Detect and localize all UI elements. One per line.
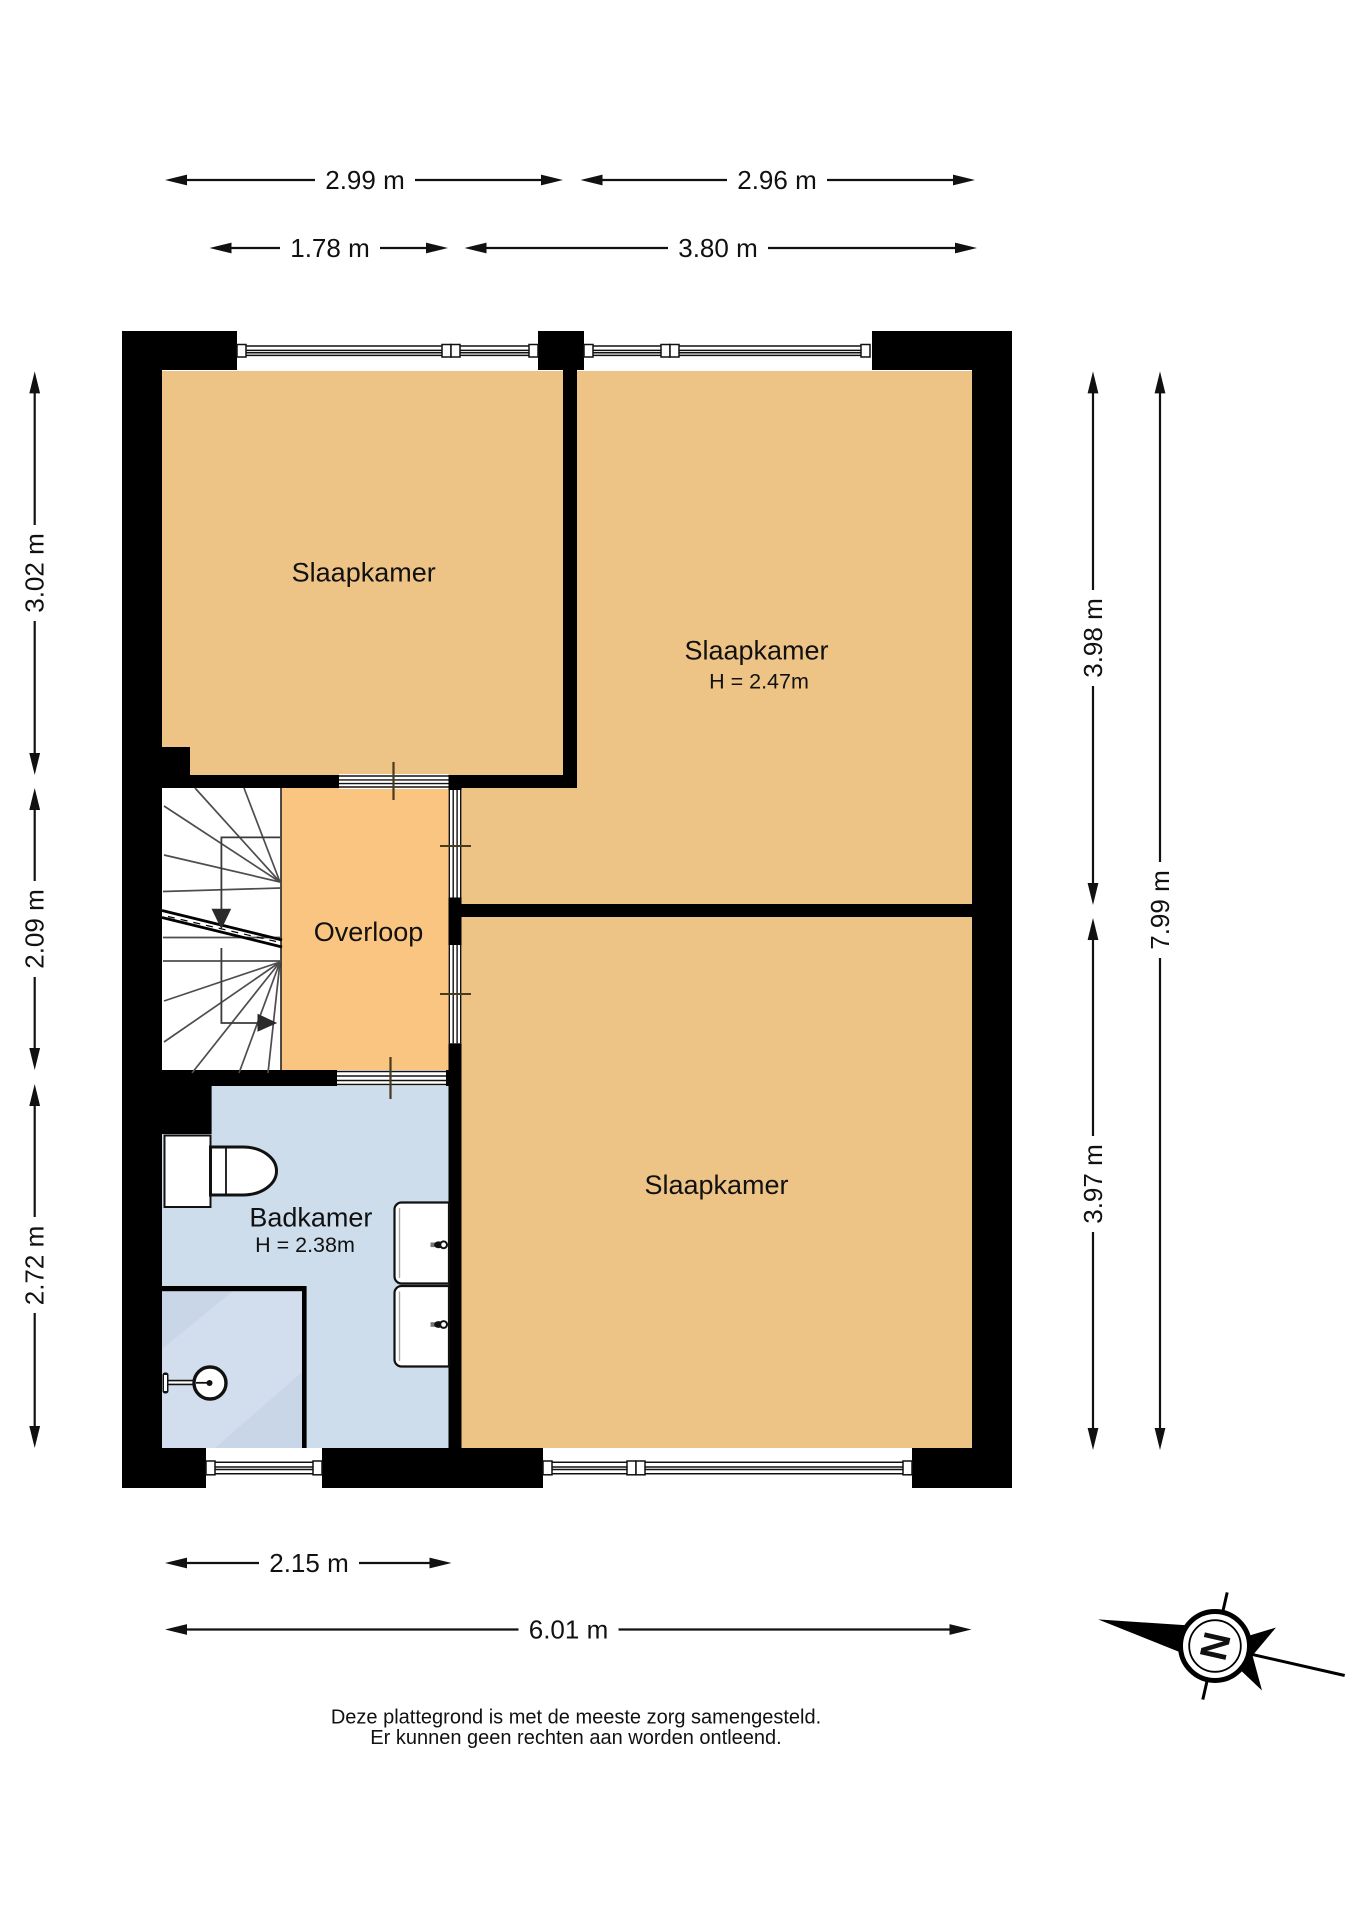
svg-text:2.09 m: 2.09 m bbox=[20, 889, 50, 969]
svg-text:Slaapkamer: Slaapkamer bbox=[644, 1170, 788, 1200]
svg-text:7.99 m: 7.99 m bbox=[1145, 870, 1175, 950]
svg-text:2.96 m: 2.96 m bbox=[737, 165, 817, 195]
svg-text:3.80 m: 3.80 m bbox=[678, 233, 758, 263]
svg-text:Overloop: Overloop bbox=[314, 917, 424, 947]
svg-text:2.15 m: 2.15 m bbox=[269, 1548, 349, 1578]
svg-text:2.99 m: 2.99 m bbox=[325, 165, 405, 195]
svg-text:3.97 m: 3.97 m bbox=[1078, 1144, 1108, 1224]
svg-text:H = 2.38m: H = 2.38m bbox=[255, 1233, 355, 1257]
svg-text:2.72 m: 2.72 m bbox=[20, 1226, 50, 1306]
svg-text:6.01 m: 6.01 m bbox=[529, 1615, 609, 1645]
svg-text:Badkamer: Badkamer bbox=[249, 1202, 372, 1232]
svg-text:Slaapkamer: Slaapkamer bbox=[292, 558, 436, 588]
svg-text:Deze plattegrond is met de mee: Deze plattegrond is met de meeste zorg s… bbox=[331, 1706, 821, 1728]
svg-text:3.98 m: 3.98 m bbox=[1078, 598, 1108, 678]
svg-text:H = 2.47m: H = 2.47m bbox=[709, 669, 809, 693]
svg-text:1.78 m: 1.78 m bbox=[290, 233, 370, 263]
svg-text:3.02 m: 3.02 m bbox=[20, 533, 50, 613]
svg-text:Slaapkamer: Slaapkamer bbox=[684, 636, 828, 666]
svg-text:Er kunnen geen rechten aan wor: Er kunnen geen rechten aan worden ontlee… bbox=[370, 1727, 781, 1749]
